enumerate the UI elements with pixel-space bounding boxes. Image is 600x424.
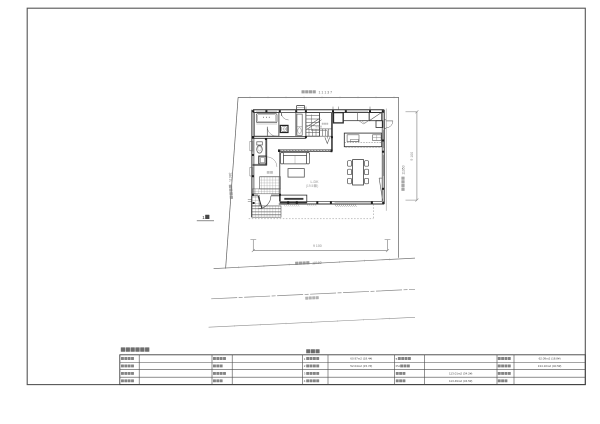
- svg-text:11350: 11350: [402, 165, 406, 174]
- svg-text:9 100: 9 100: [410, 152, 414, 161]
- svg-text:134.10m2 (40.5#): 134.10m2 (40.5#): [538, 364, 562, 368]
- svg-text:11382: 11382: [228, 172, 233, 182]
- svg-text:60.97m2 (18.4#): 60.97m2 (18.4#): [350, 357, 372, 361]
- svg-text:PH: PH: [396, 364, 400, 368]
- svg-text:1 1 1 3 7: 1 1 1 3 7: [319, 90, 333, 94]
- svg-text:1: 1: [202, 215, 205, 220]
- svg-text:): ): [317, 184, 318, 188]
- svg-text:113.01m2 (34.2#): 113.01m2 (34.2#): [449, 372, 472, 376]
- svg-text:113.49m2 (34.5#): 113.49m2 (34.5#): [449, 379, 472, 383]
- svg-text:(19.5: (19.5: [306, 184, 313, 188]
- svg-text:62.09m2 (18.8#): 62.09m2 (18.8#): [539, 357, 561, 361]
- svg-text:9 100: 9 100: [313, 244, 322, 248]
- svg-text:12102: 12102: [312, 261, 322, 265]
- svg-text:52.04m2 (15.7#): 52.04m2 (15.7#): [350, 364, 372, 368]
